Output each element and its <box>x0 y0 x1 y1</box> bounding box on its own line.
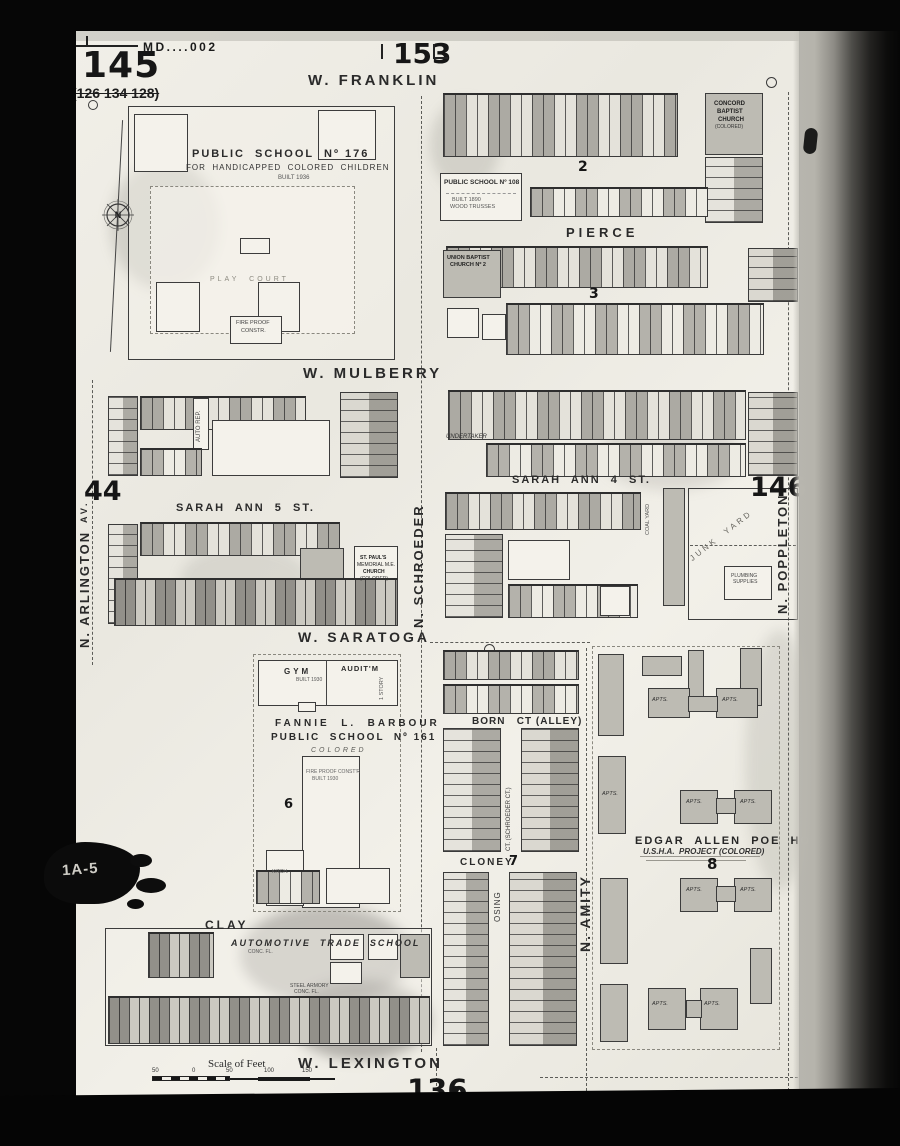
scale-bar-fill <box>258 1077 310 1081</box>
school176-name: PUBLIC SCHOOL Nº 176 <box>192 149 369 160</box>
apartment-building <box>598 654 624 736</box>
building-block <box>326 868 390 904</box>
gym-built-note: BUILT 1930 <box>296 678 322 683</box>
street-label-clay: CLAY <box>205 919 249 931</box>
building-block <box>508 540 570 580</box>
compass-north-letter: N <box>115 210 122 220</box>
rowhouses-strip <box>530 187 708 217</box>
scale-tick: 50 <box>152 1068 159 1074</box>
scale-tick: 100 <box>264 1068 274 1074</box>
stage-building <box>298 702 316 712</box>
stpauls-name-2: MEMORIAL M.E. <box>357 563 395 568</box>
building-block <box>482 314 506 340</box>
alley-label-osing: OSING <box>494 891 502 922</box>
poe-note-line <box>646 860 746 861</box>
rowhouses-strip <box>340 392 398 478</box>
apartment-building <box>642 656 682 676</box>
adjacent-sheet-left: 44 <box>84 478 122 505</box>
ink-blot-splash <box>130 854 152 867</box>
kitchen-label: KITCH. <box>272 870 288 875</box>
gym-divider <box>326 660 327 706</box>
rowhouses-strip <box>486 443 746 477</box>
rowhouses-strip <box>148 932 214 978</box>
building-block <box>447 308 479 338</box>
street-centerline-amity <box>586 648 587 1096</box>
building-block <box>156 282 200 332</box>
rowhouses-strip <box>521 728 579 852</box>
apartment-building <box>750 948 772 1004</box>
ink-blot-text: 1A-5 <box>62 861 99 879</box>
apts-label: APTS. <box>740 888 756 894</box>
concord-church-name-2: BAPTIST <box>717 109 743 115</box>
apartment-building <box>700 988 738 1030</box>
book-edge-gradient <box>793 0 900 1146</box>
corner-mark <box>381 44 383 59</box>
concord-church-name-3: CHURCH <box>718 117 744 123</box>
street-label-w-mulberry: W. MULBERRY <box>303 366 442 381</box>
poe-note-line <box>640 856 760 857</box>
apts-label: APTS. <box>652 1002 668 1008</box>
apartment-building <box>600 984 628 1042</box>
block-number-8: 8 <box>707 857 717 872</box>
school176-subtitle: FOR HANDICAPPED COLORED CHILDREN <box>186 164 389 172</box>
street-label-w-lexington: W. LEXINGTON <box>298 1056 443 1071</box>
rowhouses-strip <box>443 684 579 714</box>
corner-mark <box>433 57 448 59</box>
school108-built: BUILT 1890 <box>452 198 481 204</box>
rowhouses-strip <box>256 870 320 904</box>
building-block <box>600 586 630 616</box>
apts-label: APTS. <box>704 1002 720 1008</box>
barbour-name-1: FANNIE L. BARBOUR <box>275 719 440 729</box>
school108-note: WOOD TRUSSES <box>450 205 495 211</box>
play-court-label: PLAY COURT <box>210 276 289 283</box>
rowhouses-strip <box>443 650 579 680</box>
auto-repair-label: AUTO REP. <box>196 411 202 442</box>
apartment-connector <box>716 886 736 902</box>
auditorium-label: AUDIT'M <box>341 665 379 673</box>
scale-tick: 0 <box>192 1068 195 1074</box>
block-number-2: 2 <box>578 160 588 174</box>
building-block <box>300 548 344 580</box>
survey-marker-icon <box>88 100 98 110</box>
sanborn-map-scan: N <box>0 0 900 1146</box>
apts-label: APTS. <box>722 698 738 704</box>
rowhouses-strip <box>108 396 138 476</box>
sheet-number: 145 <box>82 48 160 84</box>
scan-border-top <box>0 0 900 31</box>
one-story-note: 1 STORY <box>380 677 386 700</box>
garage-building <box>212 420 330 476</box>
apts-label: APTS. <box>602 792 618 798</box>
apartment-building <box>648 988 686 1030</box>
street-label-born-ct: BORN CT (ALLEY) <box>472 717 582 727</box>
street-label-w-franklin: W. FRANKLIN <box>308 73 439 88</box>
street-label-sarah-ann-4: SARAH ANN 4 ST. <box>512 475 651 486</box>
plumbing-label-2: SUPPLIES <box>733 580 757 585</box>
apartment-building <box>680 790 718 824</box>
rowhouses-strip <box>443 728 501 852</box>
apartment-connector <box>716 798 736 814</box>
street-centerline-arlington <box>92 380 93 665</box>
street-label-n-arlington: N. ARLINGTON <box>78 531 91 648</box>
barbour-note-2: BUILT 1930 <box>312 777 338 782</box>
apartment-building <box>600 878 628 964</box>
undertaker-label: UNDERTAKER <box>446 434 487 440</box>
scan-border-bottom <box>0 1088 900 1146</box>
street-label-arlington-av: AV. <box>80 500 89 523</box>
street-label-cloney: CLONEY <box>460 858 514 868</box>
school108-name: PUBLIC SCHOOL Nº 108 <box>444 180 519 187</box>
adjacent-sheet-top: 153 <box>393 40 451 68</box>
poe-homes-subtitle: U.S.H.A. PROJECT (COLORED) <box>643 848 764 856</box>
fold-mark <box>86 36 88 46</box>
building-block <box>134 114 188 172</box>
apartment-building <box>734 790 772 824</box>
fire-proof-label2: CONSTR. <box>241 329 266 335</box>
survey-marker-icon <box>766 77 777 88</box>
rowhouses-strip <box>114 578 398 626</box>
apartment-connector <box>688 696 718 712</box>
rowhouses-strip <box>445 534 503 618</box>
conc-fl-note: CONC. FL. <box>248 950 273 955</box>
concord-church-name-4: (COLORED) <box>715 125 743 130</box>
block-number-3: 3 <box>589 287 599 301</box>
building-block <box>240 238 270 254</box>
street-label-n-poppleton: N. POPPLETON <box>776 493 789 614</box>
rowhouses-strip <box>108 996 430 1044</box>
apts-label: APTS. <box>686 888 702 894</box>
apartment-building <box>734 878 772 912</box>
ink-blot-splash <box>136 878 166 893</box>
scale-label: Scale of Feet <box>208 1059 265 1070</box>
rowhouses-strip <box>448 390 746 440</box>
rowhouses-strip <box>445 492 641 530</box>
scale-tick: 150 <box>302 1068 312 1074</box>
block-number-6: 6 <box>284 798 293 811</box>
building-block <box>330 962 362 984</box>
rowhouses-strip <box>506 303 764 355</box>
gym-label: GYM <box>284 668 311 676</box>
rowhouses-strip <box>443 93 678 157</box>
street-centerline-lexington <box>540 1077 798 1078</box>
fire-proof-label: FIRE PROOF <box>236 321 270 327</box>
barbour-note-1: FIRE PROOF CONST'R <box>306 770 360 775</box>
school176-built: BUILT 1936 <box>278 175 309 181</box>
compass-rose-icon: N <box>100 197 136 233</box>
rowhouses-strip <box>140 448 202 476</box>
armory-note-2: CONC. FL. <box>294 990 319 995</box>
street-label-n-amity: N. AMITY <box>578 875 592 952</box>
apts-label: APTS. <box>686 800 702 806</box>
rowhouses-strip <box>748 392 798 476</box>
union-church-name-1: UNION BAPTIST <box>447 256 490 262</box>
street-label-n-schroeder: N. SCHROEDER <box>412 504 425 628</box>
concord-church-name-1: CONCORD <box>714 101 745 107</box>
apts-label: APTS. <box>652 698 668 704</box>
stpauls-name-3: CHURCH <box>363 570 385 575</box>
rowhouses-strip <box>509 872 577 1046</box>
ink-blot-splash <box>127 899 144 909</box>
barbour-colored-note: COLORED <box>311 747 367 754</box>
stpauls-name-1: ST. PAUL'S <box>360 556 386 561</box>
street-centerline-saratoga <box>430 642 590 643</box>
street-label-w-saratoga: W. SARATOGA <box>298 630 430 644</box>
rowhouses-strip <box>705 157 763 223</box>
scan-border-left <box>0 0 76 1146</box>
block-number-7: 7 <box>509 855 518 868</box>
automotive-school-label: AUTOMOTIVE TRADE SCHOOL <box>231 939 420 948</box>
apartment-connector <box>686 1000 702 1018</box>
sheet-cross-ref: (126 134 128) <box>72 86 159 100</box>
alley-label-schroeder-ct: CT. (SCHROEDER CT.) <box>506 787 512 851</box>
school108-inner-line <box>446 193 516 194</box>
stpauls-name-4: (COLORED) <box>360 577 388 582</box>
rowhouses-strip <box>443 872 489 1046</box>
street-label-pierce: PIERCE <box>566 226 638 239</box>
coal-yard-label: COAL YARD <box>646 504 652 535</box>
scale-tick: 50 <box>226 1068 233 1074</box>
apartment-building <box>680 878 718 912</box>
union-church-name-2: CHURCH Nº 2 <box>450 263 486 269</box>
building-block <box>663 488 685 606</box>
apts-label: APTS. <box>740 800 756 806</box>
scale-bar-segments <box>152 1076 230 1081</box>
street-label-sarah-ann-5: SARAH ANN 5 ST. <box>176 503 315 514</box>
barbour-name-2: PUBLIC SCHOOL Nº 161 <box>271 733 436 743</box>
rowhouses-strip <box>748 248 798 302</box>
